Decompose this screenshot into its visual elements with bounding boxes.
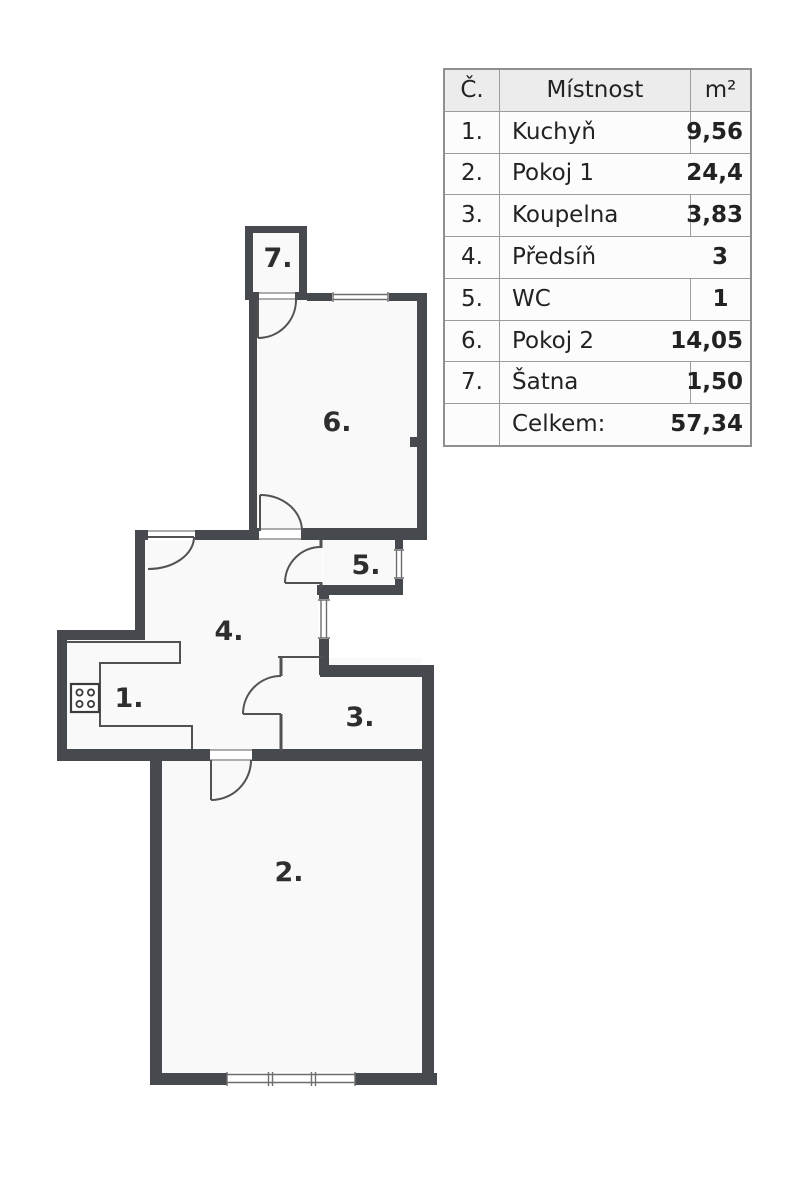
row-area: 9,56 <box>690 112 750 153</box>
room-1-label: 1. <box>114 683 143 714</box>
row-number: 2. <box>445 154 500 195</box>
total-label: Celkem: <box>500 404 690 445</box>
row-number: 3. <box>445 195 500 236</box>
window-hall-east <box>318 599 330 639</box>
table-row: 2. Pokoj 1 24,4 <box>445 153 750 195</box>
window-room2-bottom <box>227 1072 355 1086</box>
row-area: 14,05 <box>690 321 750 362</box>
table-row: 3. Koupelna 3,83 <box>445 194 750 236</box>
row-number: 5. <box>445 279 500 320</box>
room-floors <box>66 232 424 1074</box>
row-name: Kuchyň <box>500 112 690 153</box>
row-number: 7. <box>445 362 500 403</box>
row-name: Koupelna <box>500 195 690 236</box>
total-number <box>445 404 500 445</box>
room-6-label: 6. <box>322 407 351 438</box>
window-room6-top <box>332 292 389 302</box>
room-5-label: 5. <box>351 550 380 581</box>
row-area: 1,50 <box>690 362 750 403</box>
window-room5-right <box>394 549 404 579</box>
total-area: 57,34 <box>690 404 750 445</box>
header-area: m² <box>690 70 750 111</box>
table-row: 7. Šatna 1,50 <box>445 361 750 403</box>
row-name: Předsíň <box>500 237 690 278</box>
row-number: 1. <box>445 112 500 153</box>
room-2-label: 2. <box>274 857 303 888</box>
table-header-row: Č. Místnost m² <box>445 70 750 111</box>
header-room: Místnost <box>500 70 690 111</box>
row-area: 24,4 <box>690 154 750 195</box>
room-3-label: 3. <box>345 702 374 733</box>
row-area: 1 <box>690 279 750 320</box>
row-number: 6. <box>445 321 500 362</box>
header-number: Č. <box>445 70 500 111</box>
table-row: 1. Kuchyň 9,56 <box>445 111 750 153</box>
screenshot-root: 7. 6. 5. 4. 1. 3. 2. Č. Místnost m² 1. K… <box>0 0 800 1200</box>
room-2-floor <box>162 760 424 1074</box>
room-7-label: 7. <box>263 243 292 274</box>
table-total-row: Celkem: 57,34 <box>445 403 750 445</box>
row-name: Pokoj 2 <box>500 321 690 362</box>
table-row: 6. Pokoj 2 14,05 <box>445 320 750 362</box>
table-row: 5. WC 1 <box>445 278 750 320</box>
row-name: Pokoj 1 <box>500 154 690 195</box>
stove-icon <box>71 684 99 712</box>
room-area-table: Č. Místnost m² 1. Kuchyň 9,56 2. Pokoj 1… <box>443 68 752 447</box>
row-number: 4. <box>445 237 500 278</box>
row-name: Šatna <box>500 362 690 403</box>
room-4-label: 4. <box>214 616 243 647</box>
row-name: WC <box>500 279 690 320</box>
row-area: 3 <box>690 237 750 278</box>
table-row: 4. Předsíň 3 <box>445 236 750 278</box>
row-area: 3,83 <box>690 195 750 236</box>
